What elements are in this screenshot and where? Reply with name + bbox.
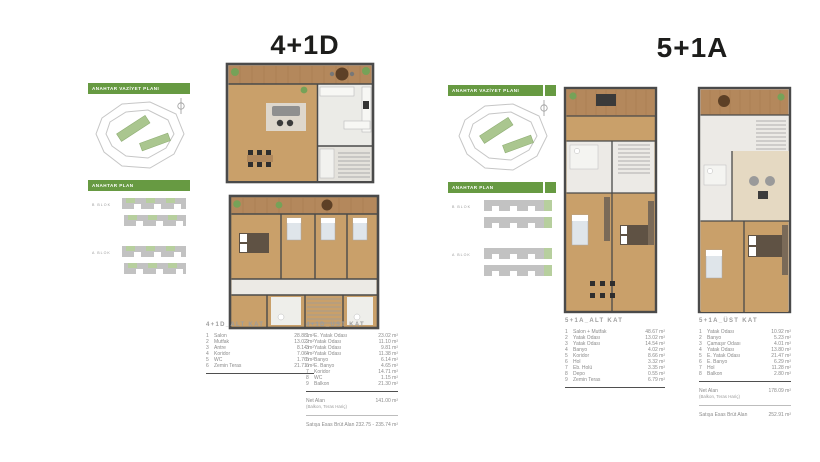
grill	[596, 94, 616, 106]
sidebar-4-1d: ANAHTAR VAZİYET PLANI ANAHTAR PLAN B BLO…	[88, 83, 190, 294]
room-rows: 1 E. Yatak Odası 23.02 m² 2 Yatak Odası …	[306, 333, 398, 387]
room-rows: 1 Yatak Odası 10.92 m² 2 Banyo 5.23 m² 3…	[699, 329, 791, 377]
net-area-subnote: (Balkon, Teras Hariç)	[699, 394, 740, 399]
plant-icon	[362, 67, 370, 75]
room-row: 6 Zemin Teras 21.71 m²	[206, 363, 314, 369]
room-list-5-1a-ust: 5+1A_ÜST KAT 1 Yatak Odası 10.92 m² 2 Ba…	[699, 318, 791, 418]
corridor	[232, 279, 377, 295]
floor-plan-4-1d-ust-kat	[227, 193, 381, 331]
block-label-b: B BLOK	[92, 203, 111, 207]
sidebar-5-1a: ANAHTAR VAZİYET PLANI ANAHTAR PLAN B BLO…	[448, 85, 556, 296]
gross-area-label: Satışa Esas Brüt Alan	[699, 412, 747, 418]
room-list-heading: 4+1D_ÜST KAT	[306, 322, 398, 328]
room-rows: 1 Salon 28.88 m² 2 Mutfak 13.02 m² 3 Ant…	[206, 333, 314, 369]
block-label-a: A BLOK	[92, 251, 111, 255]
floor-plan-5-1a-ust-kat	[696, 85, 793, 315]
north-arrow-icon	[178, 98, 184, 114]
key-plan-header: ANAHTAR PLAN	[88, 180, 190, 191]
gross-area-row: Satışa Esas Brüt Alan 252.91 m²	[699, 412, 791, 418]
unit-title-5-1a: 5+1A	[620, 32, 765, 64]
site-plan-map	[88, 96, 190, 176]
bath	[704, 165, 726, 185]
room-list-heading: 5+1A_ALT KAT	[565, 318, 665, 324]
key-plan-blocks: B BLOK A BLOK	[448, 196, 556, 296]
block-row	[124, 263, 186, 274]
room-row: 8 Balkon 2.80 m²	[699, 371, 791, 377]
block-row	[122, 198, 186, 209]
room-row: 9 Balkon 21.30 m²	[306, 381, 398, 387]
header-accent-square	[545, 85, 556, 96]
divider	[306, 391, 398, 392]
divider	[206, 373, 314, 374]
plant-icon	[276, 202, 283, 209]
stairs	[307, 299, 341, 323]
room-list-4-1d-alt: 4+1D_ALT KAT 1 Salon 28.88 m² 2 Mutfak 1…	[206, 322, 314, 374]
stairs	[338, 153, 370, 177]
wardrobe	[604, 197, 610, 241]
net-area-row: Net Alan (Balkon, Teras Hariç) 178.09 m²	[699, 388, 791, 400]
wardrobe	[782, 225, 788, 275]
floor-plan-5-1a-alt-kat	[562, 85, 659, 315]
key-plan-blocks: B BLOK A BLOK	[88, 194, 190, 294]
divider	[699, 405, 791, 406]
divider	[306, 415, 398, 416]
brochure-page: ANAHTAR VAZİYET PLANI ANAHTAR PLAN B BLO…	[0, 0, 820, 462]
bath	[320, 149, 334, 178]
gross-area-row: Satışa Esas Brüt Alan 232.75 - 235.74 m²	[306, 422, 398, 428]
plant-icon	[569, 92, 576, 99]
bath	[271, 297, 301, 325]
terrace-table	[718, 95, 730, 107]
block-row	[484, 217, 552, 228]
room-list-5-1a-alt: 5+1A_ALT KAT 1 Salon + Mutfak 48.67 m² 2…	[565, 318, 665, 388]
highlighted-buildings	[117, 115, 171, 151]
block-row	[122, 246, 186, 257]
room-row: 9 Zemin Teras 6.79 m²	[565, 377, 665, 383]
stove	[363, 101, 369, 109]
site-plan-header: ANAHTAR VAZİYET PLANI	[448, 85, 543, 96]
room-list-4-1d-ust: 4+1D_ÜST KAT 1 E. Yatak Odası 23.02 m² 2…	[306, 322, 398, 428]
armchair	[765, 176, 775, 186]
wardrobe	[648, 201, 654, 245]
terrace-table	[336, 68, 349, 81]
room-list-heading: 4+1D_ALT KAT	[206, 322, 314, 328]
north-arrow-icon	[541, 100, 547, 116]
divider	[699, 381, 791, 382]
plant-icon	[233, 200, 241, 208]
plant-icon	[231, 68, 239, 76]
block-row	[484, 200, 552, 211]
net-area-row: Net Alan (Balkon, Teras Hariç) 141.00 m²	[306, 398, 398, 410]
bath	[347, 297, 373, 325]
sofa	[272, 106, 300, 116]
kitchen-island	[320, 87, 354, 96]
plant-icon	[301, 87, 308, 94]
block-row	[484, 265, 552, 276]
site-plan-map	[448, 98, 556, 178]
site-plan-header: ANAHTAR VAZİYET PLANI	[88, 83, 190, 94]
gross-area-value: 252.91 m²	[768, 412, 791, 418]
net-area-value: 178.09 m²	[768, 388, 791, 400]
plant-icon	[777, 93, 784, 100]
block-row	[484, 248, 552, 259]
gross-area-value: 232.75 - 235.74 m²	[356, 422, 398, 428]
sitting-room	[732, 151, 789, 221]
net-area-value: 141.00 m²	[375, 398, 398, 410]
gross-area-label: Satışa Esas Brüt Alan	[306, 422, 354, 428]
block-label-a: A BLOK	[452, 253, 471, 257]
key-plan-header: ANAHTAR PLAN	[448, 182, 543, 193]
highlighted-buildings	[480, 117, 534, 153]
floor-plan-4-1d-alt-kat	[224, 61, 376, 185]
divider	[565, 387, 665, 388]
unit-title-4-1d: 4+1D	[230, 30, 380, 61]
armchair	[749, 176, 759, 186]
net-area-subnote: (Balkon, Teras Hariç)	[306, 404, 347, 409]
bath	[570, 145, 598, 169]
header-accent-square	[545, 182, 556, 193]
room-list-heading: 5+1A_ÜST KAT	[699, 318, 791, 324]
terrace-table	[322, 200, 333, 211]
room-rows: 1 Salon + Mutfak 48.67 m² 2 Yatak Odası …	[565, 329, 665, 383]
block-row	[124, 215, 186, 226]
block-label-b: B BLOK	[452, 205, 471, 209]
